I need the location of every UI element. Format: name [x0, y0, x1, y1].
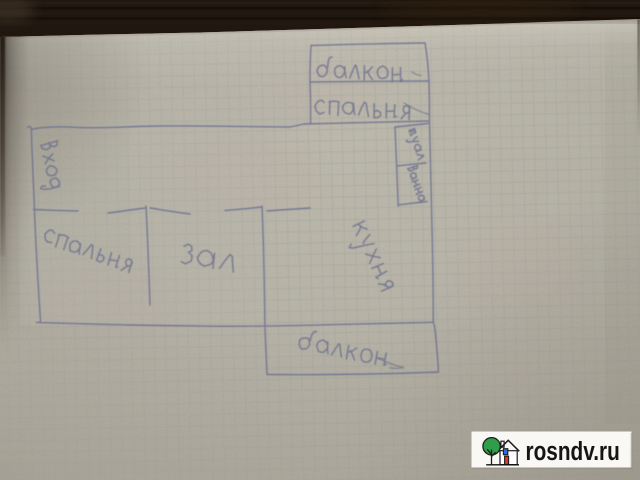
svg-text:rosndv.ru: rosndv.ru — [526, 437, 620, 466]
